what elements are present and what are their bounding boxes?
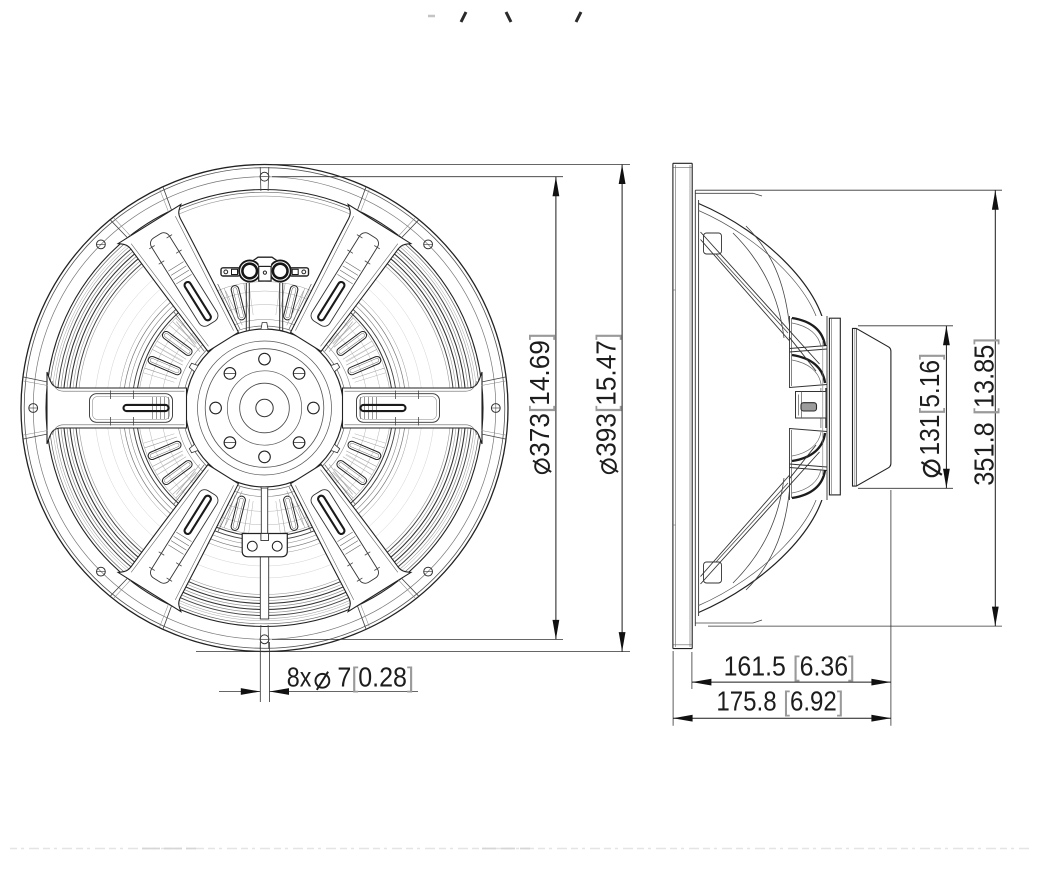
svg-text:175.8 [6.92]: 175.8 [6.92]	[716, 685, 843, 716]
svg-text:7[0.28]: 7[0.28]	[337, 661, 414, 692]
svg-text:161.5 [6.36]: 161.5 [6.36]	[724, 650, 855, 681]
svg-text:8x: 8x	[287, 661, 312, 692]
svg-text:373[14.69]: 373[14.69]	[524, 333, 555, 457]
svg-text:393[15.47]: 393[15.47]	[591, 333, 622, 457]
svg-text:351.8 [13.85]: 351.8 [13.85]	[969, 338, 1000, 486]
svg-text:131[5.16]: 131[5.16]	[914, 353, 945, 456]
